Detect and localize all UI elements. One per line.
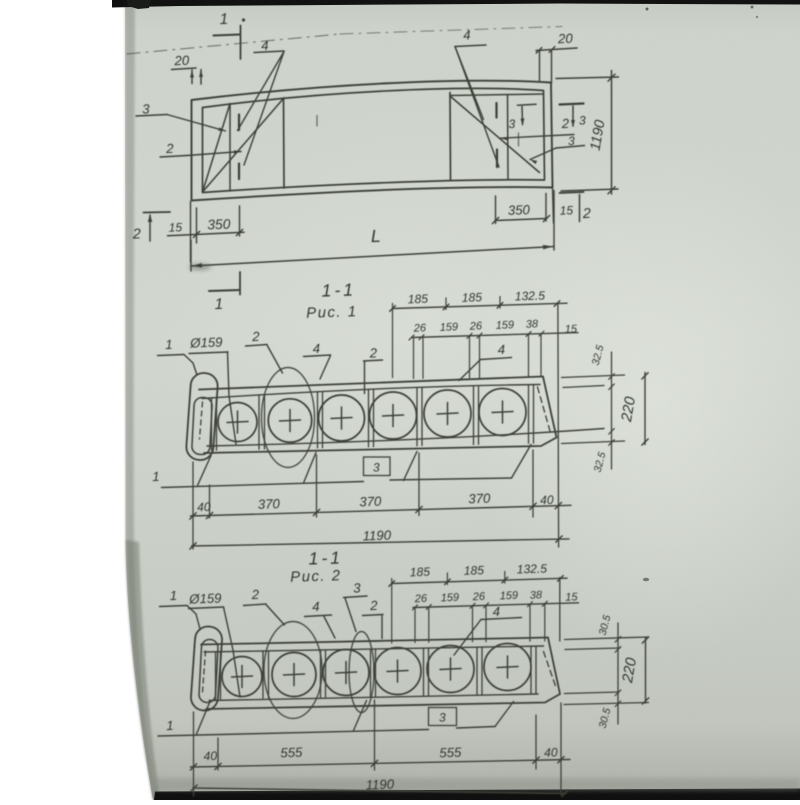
svg-text:3: 3 — [142, 101, 151, 116]
svg-text:4: 4 — [312, 341, 320, 356]
svg-text:3: 3 — [508, 117, 515, 131]
svg-text:2: 2 — [165, 141, 175, 156]
svg-text:26: 26 — [472, 591, 487, 603]
svg-text:Ø159: Ø159 — [189, 334, 223, 350]
svg-text:4: 4 — [463, 27, 471, 42]
svg-text:15: 15 — [565, 323, 579, 335]
svg-text:15: 15 — [168, 220, 182, 234]
svg-text:1: 1 — [152, 469, 160, 484]
svg-text:185: 185 — [462, 290, 483, 305]
svg-text:L: L — [371, 226, 381, 246]
svg-text:2: 2 — [582, 206, 592, 222]
svg-text:132.5: 132.5 — [514, 288, 545, 303]
svg-text:4: 4 — [497, 342, 505, 357]
svg-text:40: 40 — [203, 749, 217, 763]
svg-text:3: 3 — [579, 113, 586, 127]
svg-text:350: 350 — [207, 217, 231, 233]
svg-text:370: 370 — [258, 496, 281, 512]
svg-text:40: 40 — [540, 493, 554, 507]
svg-text:40: 40 — [544, 745, 558, 759]
svg-text:26: 26 — [414, 593, 429, 605]
svg-text:132.5: 132.5 — [516, 561, 547, 576]
svg-text:1: 1 — [165, 337, 173, 352]
svg-text:370: 370 — [468, 491, 491, 507]
svg-text:1: 1 — [214, 296, 223, 313]
svg-text:38: 38 — [530, 589, 544, 601]
svg-text:20: 20 — [557, 31, 574, 47]
svg-text:40: 40 — [197, 500, 211, 514]
svg-text:1: 1 — [166, 718, 174, 733]
svg-text:159: 159 — [500, 590, 519, 603]
svg-text:15: 15 — [559, 203, 573, 217]
svg-text:2: 2 — [369, 598, 379, 613]
svg-text:350: 350 — [508, 202, 531, 218]
svg-text:159: 159 — [440, 321, 459, 334]
svg-text:2: 2 — [251, 329, 261, 344]
svg-text:2: 2 — [250, 587, 260, 602]
svg-text:1: 1 — [169, 588, 177, 603]
svg-text:370: 370 — [359, 494, 382, 510]
svg-text:2: 2 — [132, 226, 142, 242]
svg-text:15: 15 — [565, 591, 579, 603]
svg-text:20: 20 — [173, 53, 190, 69]
svg-text:185: 185 — [464, 563, 485, 578]
svg-text:1: 1 — [219, 11, 228, 28]
svg-text:555: 555 — [280, 745, 303, 761]
svg-text:26: 26 — [413, 322, 428, 334]
svg-text:3: 3 — [439, 710, 446, 724]
svg-text:185: 185 — [408, 292, 429, 307]
svg-text:555: 555 — [439, 745, 462, 761]
svg-text:3: 3 — [373, 460, 380, 474]
svg-text:2: 2 — [560, 116, 570, 131]
svg-text:1-1: 1-1 — [321, 279, 356, 300]
svg-text:38: 38 — [526, 318, 540, 330]
svg-text:1190: 1190 — [362, 527, 392, 543]
svg-text:4: 4 — [492, 604, 500, 619]
svg-text:4: 4 — [261, 38, 269, 53]
svg-text:4: 4 — [312, 599, 320, 614]
svg-text:3: 3 — [353, 580, 362, 595]
svg-text:159: 159 — [441, 592, 460, 605]
svg-text:1-1: 1-1 — [308, 547, 343, 568]
svg-text:159: 159 — [496, 319, 515, 332]
svg-text:185: 185 — [410, 565, 431, 580]
svg-text:Рис. 1: Рис. 1 — [306, 304, 358, 322]
svg-text:Ø159: Ø159 — [188, 590, 222, 606]
svg-text:26: 26 — [469, 320, 484, 332]
svg-text:Рис. 2: Рис. 2 — [290, 568, 342, 586]
svg-text:2: 2 — [368, 345, 378, 360]
